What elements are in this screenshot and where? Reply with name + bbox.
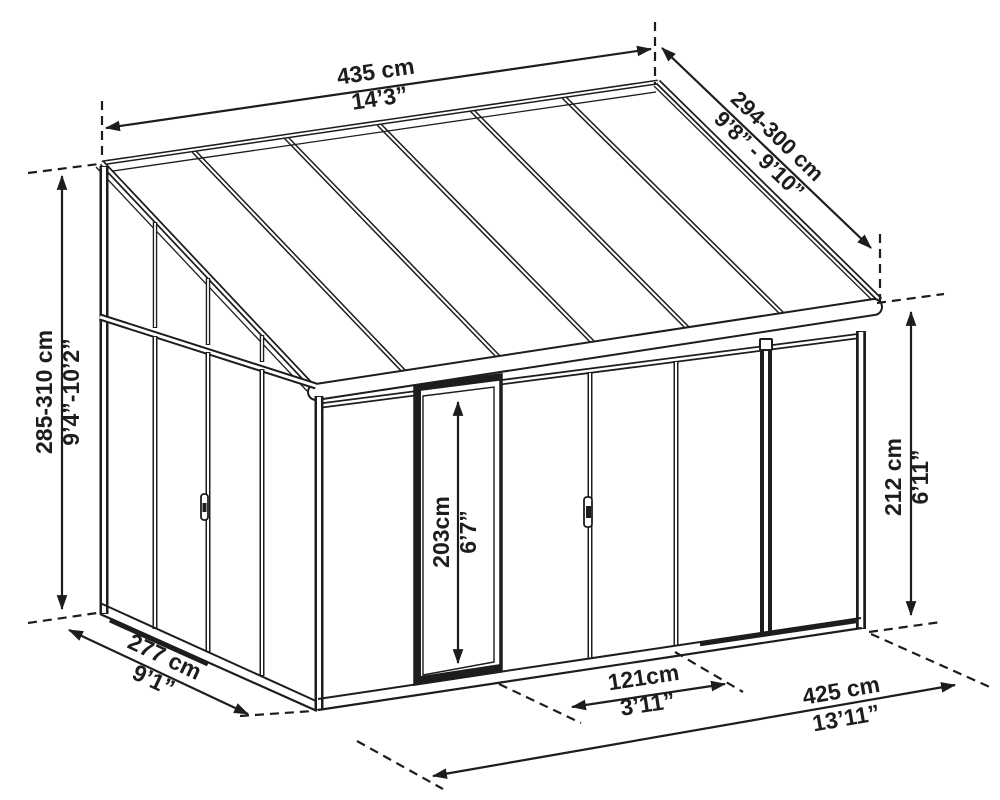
label-side-depth: 277 cm 9’1” (113, 628, 206, 708)
front-height-metric: 212 cm (880, 438, 906, 516)
label-door-width: 121cm 3’11” (606, 659, 685, 722)
back-height-imperial: 9’4”-10’2” (58, 338, 84, 445)
door-height-metric: 203cm (428, 496, 454, 568)
door-height-imperial: 6’7” (455, 510, 481, 553)
diagram-canvas: 435 cm 14’3” 294-300 cm 9’8” - 9’10” 285… (0, 0, 1000, 800)
roof-left-rafter (96, 163, 313, 391)
back-height-metric: 285-310 cm (31, 330, 57, 454)
front-wall-slider-stile (760, 339, 772, 633)
front-height-imperial: 6’11” (907, 450, 933, 505)
roof-gutter (316, 307, 874, 392)
dimension-annotations: 435 cm 14’3” 294-300 cm 9’8” - 9’10” 285… (28, 22, 992, 789)
label-front-height: 212 cm 6’11” (880, 438, 933, 516)
front-door-handle-icon (584, 497, 592, 527)
sunroom-dimension-diagram: 435 cm 14’3” 294-300 cm 9’8” - 9’10” 285… (0, 0, 1000, 800)
label-back-height: 285-310 cm 9’4”-10’2” (31, 330, 84, 454)
left-door-handle-icon (201, 494, 208, 520)
